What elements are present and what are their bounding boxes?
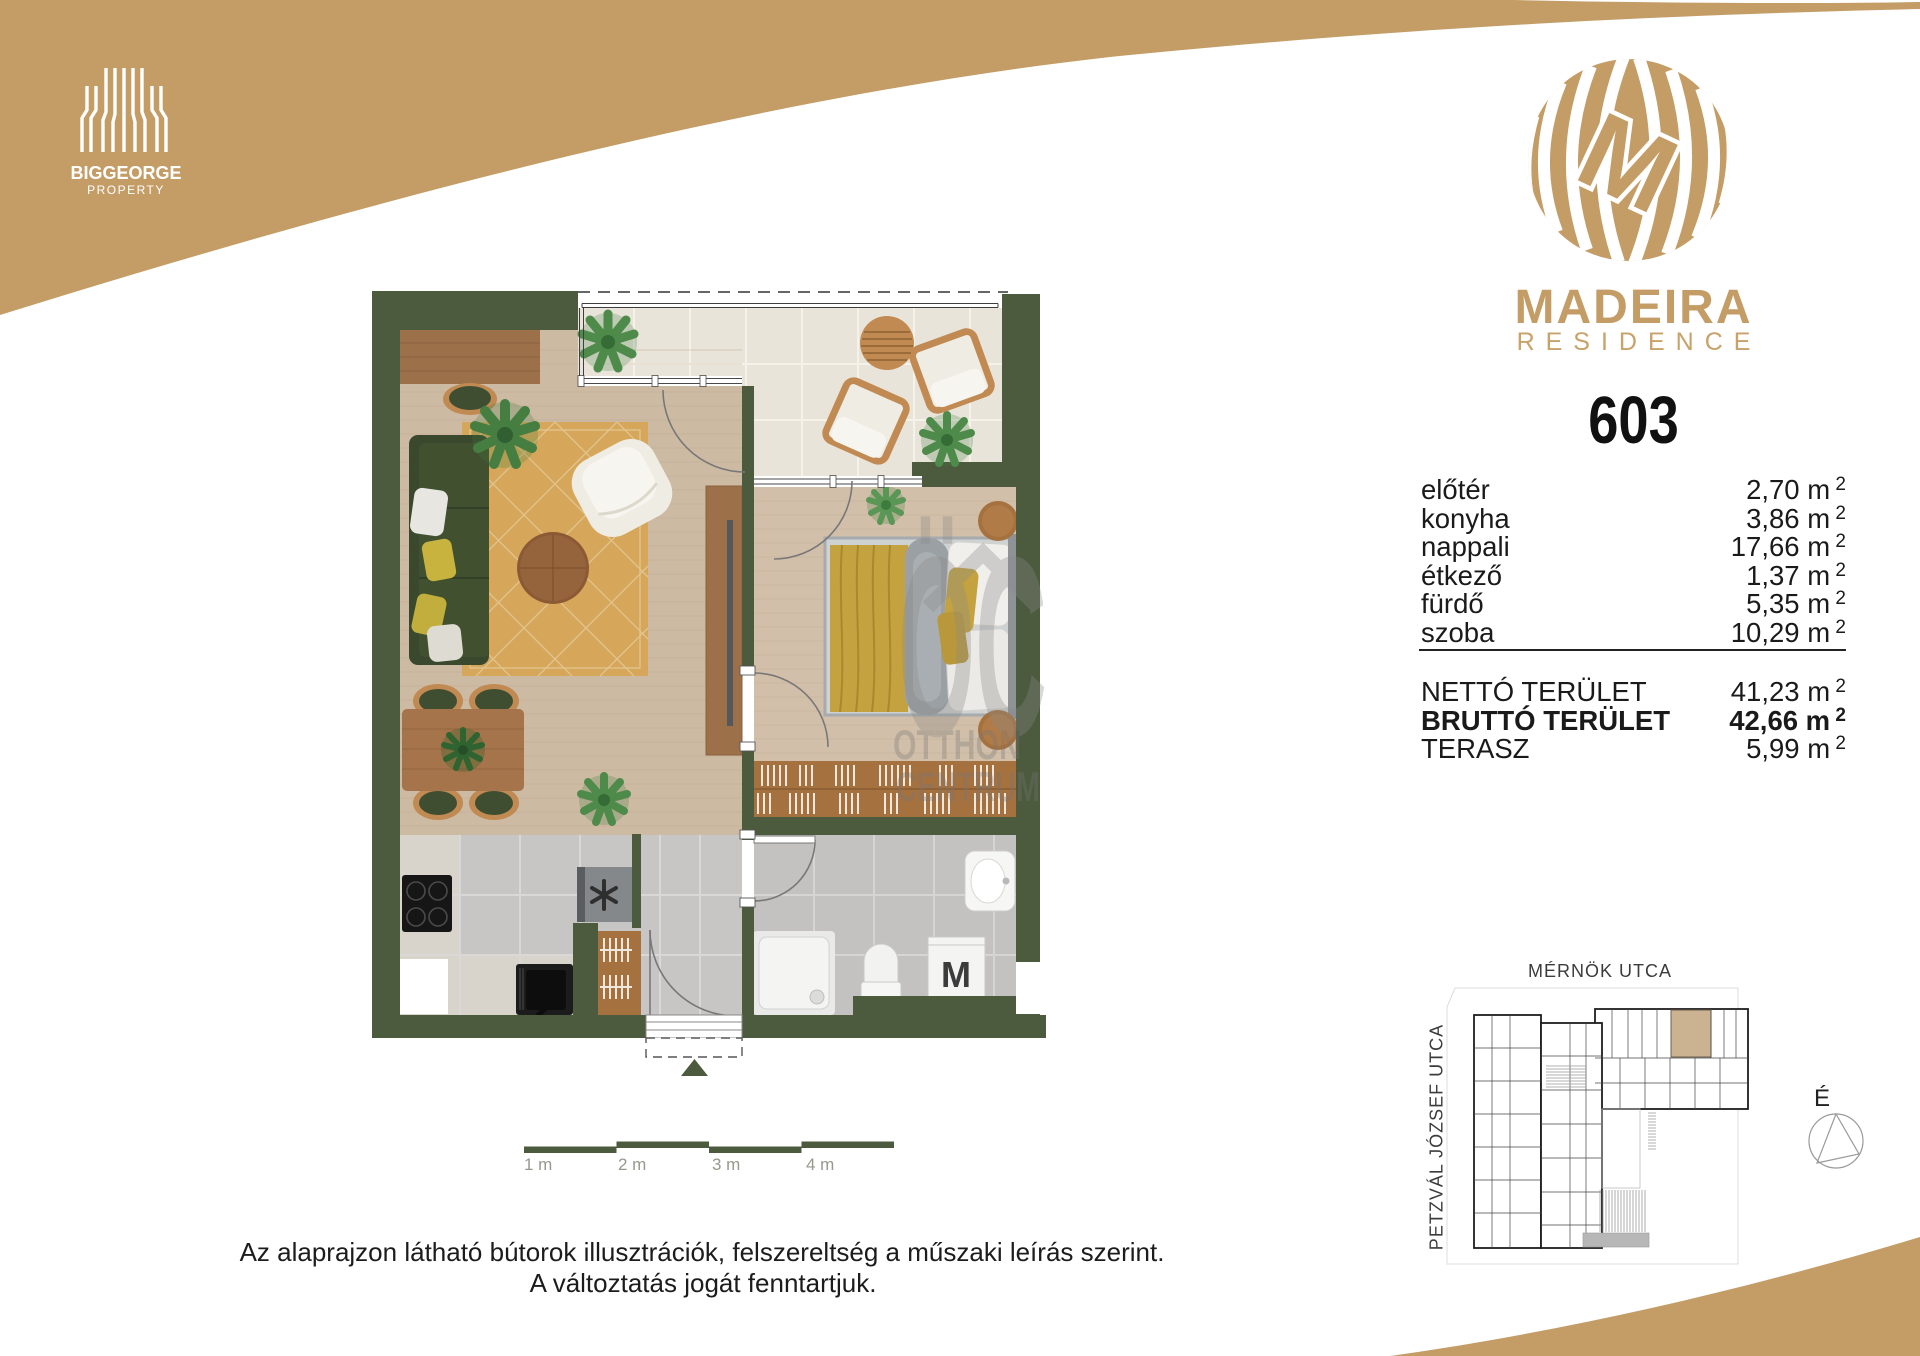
svg-text:2 m: 2 m: [618, 1155, 646, 1174]
svg-text:CENTRUM: CENTRUM: [896, 763, 1040, 810]
svg-text:OTTHON: OTTHON: [893, 721, 1021, 768]
svg-text:4 m: 4 m: [806, 1155, 834, 1174]
svg-text:3 m: 3 m: [712, 1155, 740, 1174]
svg-text:M: M: [941, 954, 971, 995]
svg-text:1 m: 1 m: [524, 1155, 552, 1174]
